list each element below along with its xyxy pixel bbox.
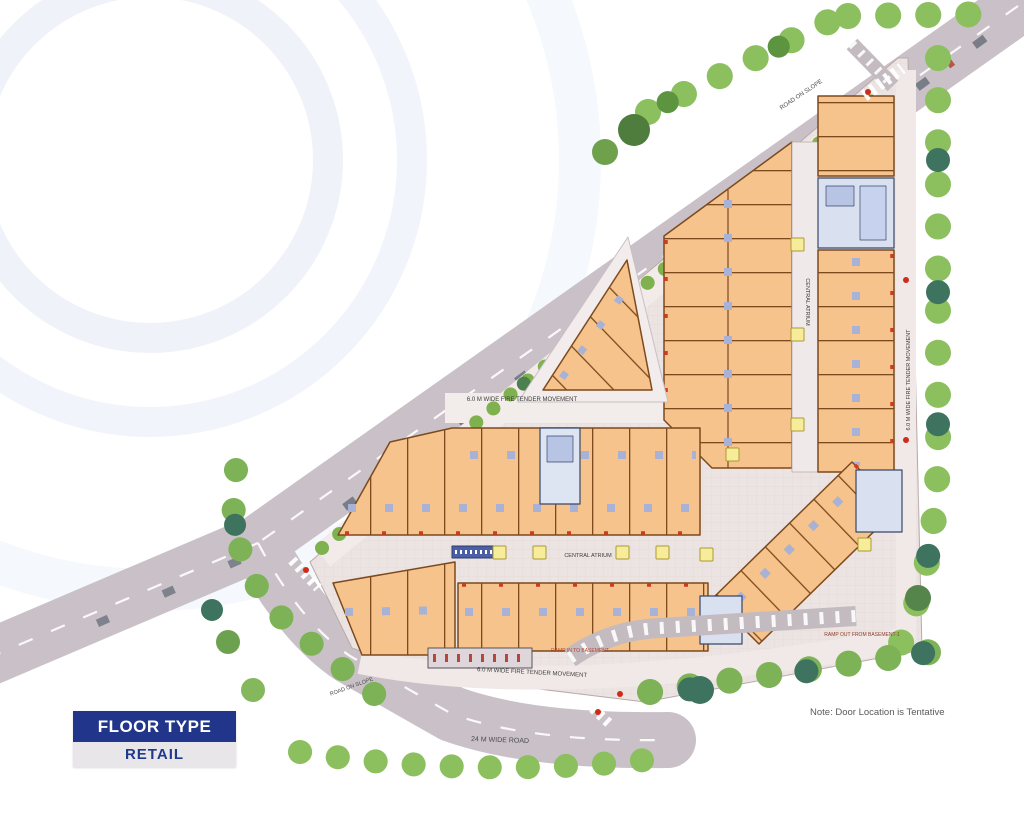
block-top-right-right	[818, 96, 894, 472]
floor-plan-page: 6.0 M WIDE FIRE TENDER MOVEMENT 6.0 M WI…	[0, 0, 1024, 824]
site-plan-drawing: 6.0 M WIDE FIRE TENDER MOVEMENT 6.0 M WI…	[0, 0, 1024, 824]
atrium-label-bottom: CENTRAL ATRIUM	[564, 553, 612, 559]
block-central	[338, 428, 700, 535]
plant-room-strip	[428, 648, 532, 668]
legend-title: FLOOR TYPE	[73, 711, 236, 742]
escalator-strip	[452, 546, 498, 558]
fire-lane-label-top: 6.0 M WIDE FIRE TENDER MOVEMENT	[467, 397, 578, 403]
floor-type-legend: FLOOR TYPE RETAIL	[73, 711, 236, 767]
fire-lane-label-right: 6.0 M WIDE FIRE TENDER MOVEMENT	[906, 329, 912, 431]
tentative-note: Note: Door Location is Tentative	[810, 707, 944, 718]
service-core-right	[856, 470, 902, 532]
ramp-out-label: RAMP OUT FROM BASEMENT-1	[824, 632, 900, 638]
ramp-in-label: RAMP IN TO BASEMENT	[551, 648, 609, 654]
atrium-label-right: CENTRAL ATRIUM	[804, 278, 810, 326]
legend-value: RETAIL	[73, 742, 236, 767]
